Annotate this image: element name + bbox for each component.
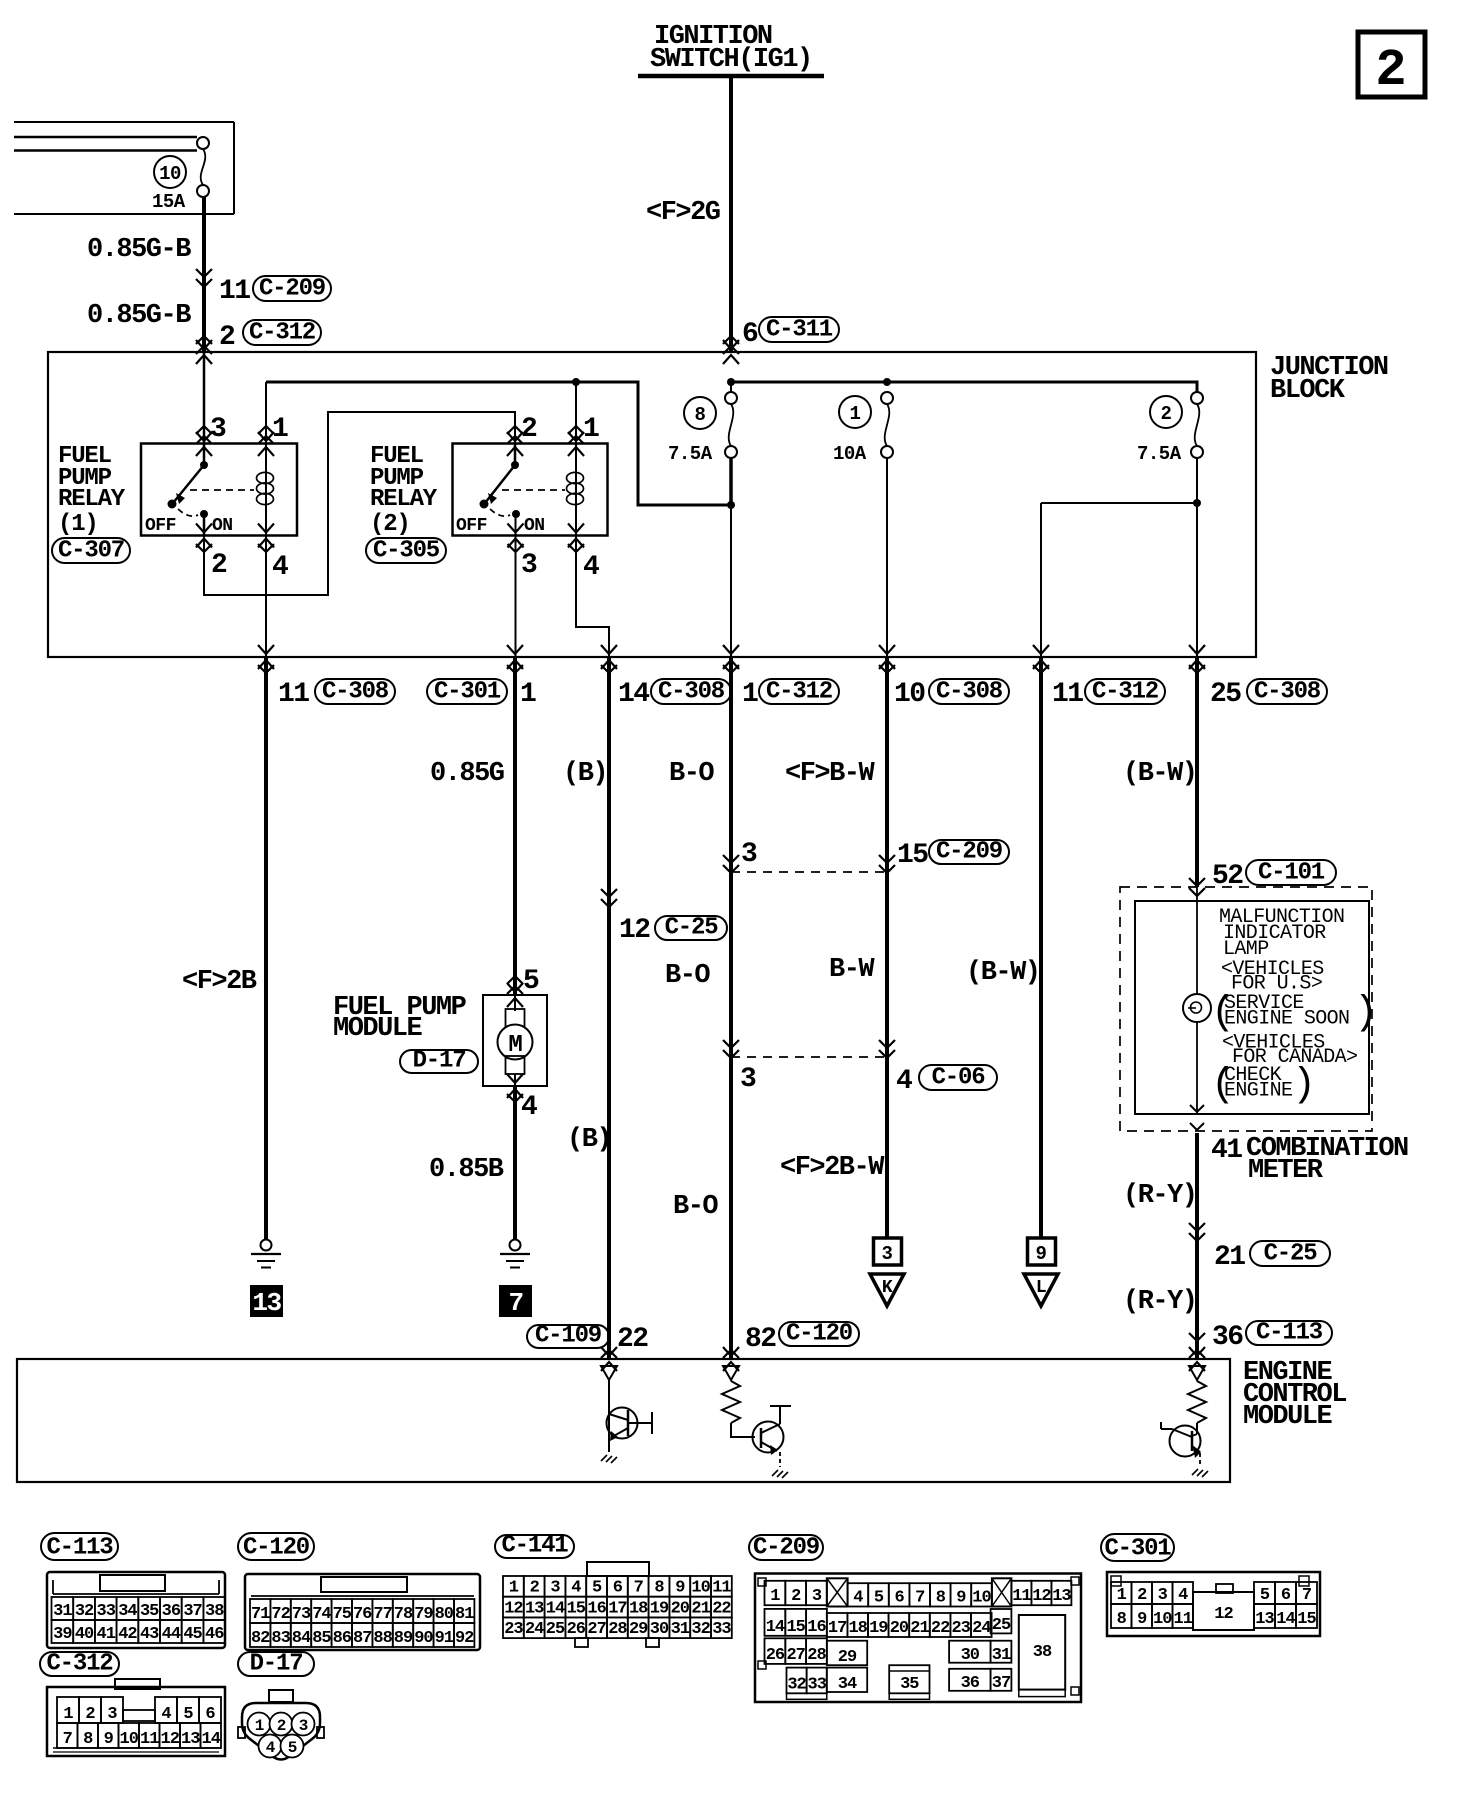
- svg-text:25: 25: [992, 1616, 1011, 1635]
- svg-text:<F>2B-W: <F>2B-W: [780, 1153, 885, 1183]
- svg-text:4: 4: [161, 1705, 171, 1724]
- svg-text:B-O: B-O: [669, 759, 714, 789]
- svg-text:5: 5: [288, 1739, 297, 1757]
- svg-text:31: 31: [53, 1602, 72, 1621]
- svg-text:12: 12: [504, 1599, 523, 1618]
- svg-text:C-06: C-06: [932, 1065, 986, 1092]
- svg-text:8: 8: [1117, 1610, 1127, 1629]
- svg-text:4: 4: [896, 1066, 912, 1097]
- svg-text:30: 30: [961, 1646, 980, 1665]
- svg-text:L: L: [1036, 1278, 1046, 1298]
- svg-text:2: 2: [1137, 1586, 1147, 1605]
- svg-text:24: 24: [972, 1619, 991, 1638]
- svg-text:2: 2: [521, 414, 537, 445]
- svg-text:2: 2: [791, 1587, 801, 1606]
- svg-text:C-209: C-209: [753, 1535, 819, 1562]
- svg-text:C-311: C-311: [766, 317, 833, 344]
- svg-text:17: 17: [828, 1619, 847, 1638]
- svg-text:20: 20: [671, 1599, 690, 1618]
- svg-text:D-17: D-17: [250, 1651, 303, 1678]
- svg-text:6: 6: [894, 1589, 904, 1608]
- svg-text:4: 4: [266, 1739, 276, 1757]
- svg-text:37: 37: [183, 1602, 202, 1621]
- svg-text:83: 83: [271, 1629, 290, 1648]
- svg-text:<F>2B: <F>2B: [182, 967, 257, 997]
- svg-text:13: 13: [525, 1599, 544, 1618]
- svg-text:C-120: C-120: [786, 1321, 853, 1348]
- svg-text:15: 15: [786, 1618, 805, 1637]
- svg-text:46: 46: [205, 1625, 224, 1644]
- svg-text:10A: 10A: [833, 443, 867, 465]
- svg-text:82: 82: [745, 1324, 776, 1355]
- svg-text:19: 19: [650, 1599, 669, 1618]
- svg-text:7: 7: [1302, 1586, 1312, 1605]
- svg-text:31: 31: [992, 1646, 1011, 1665]
- svg-text:7: 7: [634, 1579, 644, 1598]
- svg-text:4: 4: [272, 552, 288, 583]
- svg-text:(2): (2): [370, 511, 410, 538]
- svg-text:22: 22: [931, 1619, 950, 1638]
- svg-text:27: 27: [786, 1646, 805, 1665]
- svg-text:27: 27: [587, 1620, 606, 1639]
- svg-text:44: 44: [162, 1625, 181, 1644]
- svg-text:1: 1: [255, 1717, 264, 1735]
- svg-text:11: 11: [712, 1579, 731, 1598]
- svg-text:18: 18: [848, 1619, 867, 1638]
- svg-text:C-101: C-101: [1258, 860, 1325, 887]
- svg-text:C-25: C-25: [665, 915, 719, 942]
- svg-text:B-O: B-O: [673, 1192, 718, 1222]
- svg-text:88: 88: [373, 1629, 392, 1648]
- svg-text:26: 26: [567, 1620, 586, 1639]
- svg-text:1: 1: [509, 1579, 519, 1598]
- svg-text:15: 15: [897, 840, 928, 871]
- svg-text:11: 11: [278, 679, 309, 710]
- svg-text:7.5A: 7.5A: [668, 443, 713, 465]
- svg-text:76: 76: [353, 1605, 372, 1624]
- svg-text:41: 41: [1211, 1135, 1242, 1166]
- svg-text:5: 5: [1260, 1586, 1270, 1605]
- svg-text:C-307: C-307: [58, 538, 124, 565]
- svg-text:MODULE: MODULE: [333, 1014, 423, 1044]
- svg-text:12: 12: [1032, 1587, 1051, 1606]
- svg-text:): ): [1292, 1063, 1316, 1108]
- svg-text:1: 1: [583, 414, 599, 445]
- svg-text:0.85G-B: 0.85G-B: [87, 235, 191, 265]
- svg-text:1: 1: [520, 679, 536, 710]
- svg-text:<F>B-W: <F>B-W: [785, 759, 876, 789]
- svg-text:6: 6: [205, 1705, 215, 1724]
- svg-text:(B): (B): [567, 1125, 611, 1155]
- svg-text:29: 29: [629, 1620, 648, 1639]
- svg-text:7.5A: 7.5A: [1137, 443, 1182, 465]
- svg-text:C-141: C-141: [501, 1533, 568, 1560]
- svg-text:(R-Y): (R-Y): [1123, 1181, 1197, 1211]
- svg-text:RELAY: RELAY: [370, 486, 438, 513]
- svg-text:C-308: C-308: [658, 679, 725, 706]
- svg-text:9: 9: [1036, 1243, 1047, 1265]
- svg-text:7: 7: [508, 1288, 522, 1318]
- svg-text:37: 37: [992, 1674, 1011, 1693]
- svg-text:K: K: [882, 1278, 893, 1298]
- svg-text:4: 4: [521, 1092, 537, 1123]
- svg-text:4: 4: [853, 1589, 863, 1608]
- svg-text:45: 45: [183, 1625, 202, 1644]
- svg-text:34: 34: [838, 1675, 857, 1694]
- svg-text:26: 26: [766, 1646, 785, 1665]
- svg-text:2: 2: [219, 322, 235, 353]
- svg-text:24: 24: [525, 1620, 544, 1639]
- svg-text:C-301: C-301: [1104, 1536, 1171, 1563]
- svg-text:C-113: C-113: [46, 1535, 113, 1562]
- svg-text:0.85G: 0.85G: [430, 759, 504, 789]
- svg-text:9: 9: [675, 1579, 685, 1598]
- svg-text:32: 32: [75, 1602, 94, 1621]
- svg-text:C-109: C-109: [535, 1323, 601, 1350]
- svg-text:B-O: B-O: [665, 961, 710, 991]
- svg-text:C-113: C-113: [1256, 1320, 1323, 1347]
- svg-text:81: 81: [455, 1605, 474, 1624]
- svg-text:8: 8: [654, 1579, 664, 1598]
- svg-text:14: 14: [1276, 1610, 1295, 1629]
- svg-text:7: 7: [915, 1589, 925, 1608]
- svg-text:18: 18: [629, 1599, 648, 1618]
- svg-text:12: 12: [1214, 1605, 1233, 1624]
- svg-text:2: 2: [1375, 41, 1406, 100]
- svg-text:<F>2G: <F>2G: [646, 198, 720, 228]
- svg-text:21: 21: [1214, 1242, 1245, 1273]
- svg-text:73: 73: [292, 1605, 311, 1624]
- svg-text:36: 36: [162, 1602, 181, 1621]
- svg-text:23: 23: [504, 1620, 523, 1639]
- svg-text:8: 8: [936, 1589, 946, 1608]
- svg-text:ON: ON: [212, 516, 233, 536]
- svg-text:C-308: C-308: [1254, 679, 1321, 706]
- svg-text:10: 10: [1153, 1610, 1172, 1629]
- svg-text:11: 11: [1174, 1610, 1193, 1629]
- svg-text:85: 85: [312, 1629, 331, 1648]
- svg-text:13: 13: [252, 1288, 281, 1318]
- svg-text:RELAY: RELAY: [58, 486, 126, 513]
- svg-text:C-308: C-308: [936, 679, 1003, 706]
- svg-text:4: 4: [1178, 1586, 1188, 1605]
- svg-text:1: 1: [770, 1587, 780, 1606]
- svg-text:5: 5: [523, 966, 539, 997]
- svg-text:SWITCH(IG1): SWITCH(IG1): [650, 45, 812, 75]
- svg-text:35: 35: [900, 1675, 919, 1694]
- svg-text:28: 28: [608, 1620, 627, 1639]
- svg-text:14: 14: [618, 679, 649, 710]
- svg-text:16: 16: [807, 1618, 826, 1637]
- svg-text:): ): [1354, 991, 1378, 1036]
- svg-text:10: 10: [159, 163, 181, 185]
- svg-text:B-W: B-W: [829, 955, 875, 985]
- svg-text:3: 3: [740, 1064, 756, 1095]
- svg-text:(B): (B): [563, 759, 607, 789]
- svg-text:ON: ON: [524, 516, 545, 536]
- svg-text:5: 5: [874, 1589, 884, 1608]
- svg-text:9: 9: [104, 1730, 114, 1749]
- svg-text:35: 35: [140, 1602, 159, 1621]
- svg-text:40: 40: [75, 1625, 94, 1644]
- svg-text:3: 3: [882, 1243, 893, 1265]
- svg-text:C-209: C-209: [259, 276, 325, 303]
- svg-text:C-305: C-305: [373, 538, 440, 565]
- svg-text:2: 2: [1161, 403, 1172, 425]
- svg-text:OFF: OFF: [456, 516, 487, 536]
- svg-text:33: 33: [712, 1620, 731, 1639]
- svg-text:10: 10: [120, 1730, 139, 1749]
- svg-text:8: 8: [695, 404, 706, 426]
- svg-text:(B-W): (B-W): [1123, 759, 1197, 789]
- svg-text:30: 30: [650, 1620, 669, 1639]
- svg-text:19: 19: [869, 1619, 888, 1638]
- svg-text:4: 4: [583, 552, 599, 583]
- svg-text:82: 82: [251, 1629, 270, 1648]
- svg-text:29: 29: [838, 1648, 857, 1667]
- svg-text:0.85G-B: 0.85G-B: [87, 301, 191, 331]
- svg-text:1: 1: [850, 403, 861, 425]
- svg-text:M: M: [508, 1032, 522, 1059]
- svg-text:12: 12: [161, 1730, 180, 1749]
- svg-text:22: 22: [712, 1599, 731, 1618]
- svg-text:2: 2: [277, 1717, 286, 1735]
- svg-text:C-312: C-312: [46, 1651, 112, 1678]
- svg-text:(: (: [1211, 1063, 1235, 1108]
- svg-text:BLOCK: BLOCK: [1270, 376, 1346, 406]
- svg-text:2: 2: [211, 550, 227, 581]
- svg-text:14: 14: [766, 1618, 785, 1637]
- svg-text:39: 39: [53, 1625, 72, 1644]
- svg-text:41: 41: [97, 1625, 116, 1644]
- svg-text:11: 11: [219, 276, 250, 307]
- svg-text:86: 86: [333, 1629, 352, 1648]
- svg-text:38: 38: [1033, 1643, 1052, 1662]
- svg-text:C-209: C-209: [936, 839, 1002, 866]
- svg-text:3: 3: [521, 550, 537, 581]
- svg-text:15: 15: [1297, 1610, 1316, 1629]
- svg-text:21: 21: [691, 1599, 710, 1618]
- svg-text:91: 91: [435, 1629, 454, 1648]
- svg-text:3: 3: [210, 414, 226, 445]
- svg-text:43: 43: [140, 1625, 159, 1644]
- svg-text:10: 10: [691, 1579, 710, 1598]
- svg-text:89: 89: [394, 1629, 413, 1648]
- svg-text:13: 13: [1255, 1610, 1274, 1629]
- svg-text:7: 7: [63, 1730, 73, 1749]
- svg-text:13: 13: [181, 1730, 200, 1749]
- svg-text:25: 25: [1210, 679, 1241, 710]
- svg-text:25: 25: [546, 1620, 565, 1639]
- svg-text:79: 79: [414, 1605, 433, 1624]
- svg-text:71: 71: [251, 1605, 270, 1624]
- svg-text:36: 36: [1212, 1322, 1243, 1353]
- svg-text:34: 34: [118, 1602, 137, 1621]
- svg-text:75: 75: [333, 1605, 352, 1624]
- svg-text:13: 13: [1052, 1587, 1071, 1606]
- svg-text:2: 2: [530, 1579, 540, 1598]
- svg-text:MODULE: MODULE: [1243, 1402, 1333, 1432]
- svg-text:32: 32: [691, 1620, 710, 1639]
- svg-text:22: 22: [617, 1324, 648, 1355]
- svg-text:2: 2: [85, 1705, 95, 1724]
- svg-text:33: 33: [808, 1675, 827, 1694]
- svg-text:77: 77: [373, 1605, 392, 1624]
- svg-text:5: 5: [183, 1705, 193, 1724]
- svg-text:5: 5: [592, 1579, 602, 1598]
- svg-text:36: 36: [961, 1674, 980, 1693]
- svg-text:32: 32: [787, 1675, 806, 1694]
- svg-text:1: 1: [1117, 1586, 1127, 1605]
- svg-text:9: 9: [956, 1589, 966, 1608]
- svg-text:15: 15: [567, 1599, 586, 1618]
- svg-text:20: 20: [890, 1619, 909, 1638]
- svg-text:84: 84: [292, 1629, 311, 1648]
- svg-text:42: 42: [118, 1625, 137, 1644]
- svg-text:87: 87: [353, 1629, 372, 1648]
- svg-text:METER: METER: [1248, 1156, 1324, 1186]
- svg-text:3: 3: [107, 1705, 117, 1724]
- svg-text:6: 6: [742, 319, 758, 350]
- svg-text:10: 10: [894, 679, 925, 710]
- svg-text:80: 80: [435, 1605, 454, 1624]
- svg-text:1: 1: [63, 1705, 73, 1724]
- svg-text:15A: 15A: [152, 191, 186, 213]
- svg-text:6: 6: [613, 1579, 623, 1598]
- svg-text:(: (: [1211, 991, 1235, 1036]
- svg-text:4: 4: [571, 1579, 581, 1598]
- svg-text:11: 11: [1012, 1587, 1031, 1606]
- svg-text:11: 11: [140, 1730, 159, 1749]
- svg-text:C-301: C-301: [434, 679, 501, 706]
- svg-text:17: 17: [608, 1599, 627, 1618]
- svg-text:38: 38: [205, 1602, 224, 1621]
- svg-text:90: 90: [414, 1629, 433, 1648]
- svg-text:3: 3: [1158, 1586, 1168, 1605]
- svg-text:9: 9: [1137, 1610, 1147, 1629]
- svg-text:11: 11: [1052, 679, 1083, 710]
- svg-text:23: 23: [951, 1619, 970, 1638]
- svg-text:D-17: D-17: [413, 1048, 466, 1075]
- svg-text:ENGINE SOON: ENGINE SOON: [1224, 1008, 1349, 1031]
- svg-text:31: 31: [671, 1620, 690, 1639]
- svg-text:14: 14: [546, 1599, 565, 1618]
- svg-text:C-25: C-25: [1264, 1241, 1318, 1268]
- svg-text:3: 3: [550, 1579, 560, 1598]
- svg-text:16: 16: [587, 1599, 606, 1618]
- svg-text:12: 12: [619, 915, 650, 946]
- svg-text:72: 72: [271, 1605, 290, 1624]
- svg-text:(B-W): (B-W): [966, 958, 1040, 988]
- svg-text:C-312: C-312: [1092, 679, 1158, 706]
- svg-text:14: 14: [202, 1730, 221, 1749]
- svg-text:C-120: C-120: [243, 1535, 310, 1562]
- svg-text:1: 1: [272, 414, 288, 445]
- svg-text:0.85B: 0.85B: [429, 1155, 504, 1185]
- svg-text:74: 74: [312, 1605, 331, 1624]
- svg-text:78: 78: [394, 1605, 413, 1624]
- svg-text:3: 3: [299, 1717, 308, 1735]
- svg-text:1: 1: [742, 679, 758, 710]
- svg-text:10: 10: [972, 1589, 991, 1608]
- svg-text:6: 6: [1281, 1586, 1291, 1605]
- svg-text:92: 92: [455, 1629, 474, 1648]
- svg-text:8: 8: [83, 1730, 93, 1749]
- svg-text:3: 3: [741, 839, 757, 870]
- svg-text:3: 3: [812, 1587, 822, 1606]
- svg-text:21: 21: [910, 1619, 929, 1638]
- svg-text:C-308: C-308: [322, 679, 389, 706]
- svg-text:C-312: C-312: [249, 320, 315, 347]
- svg-text:33: 33: [97, 1602, 116, 1621]
- svg-text:OFF: OFF: [145, 516, 176, 536]
- svg-text:(1): (1): [58, 511, 98, 538]
- svg-text:(R-Y): (R-Y): [1123, 1287, 1197, 1317]
- svg-text:28: 28: [807, 1646, 826, 1665]
- svg-text:C-312: C-312: [766, 679, 832, 706]
